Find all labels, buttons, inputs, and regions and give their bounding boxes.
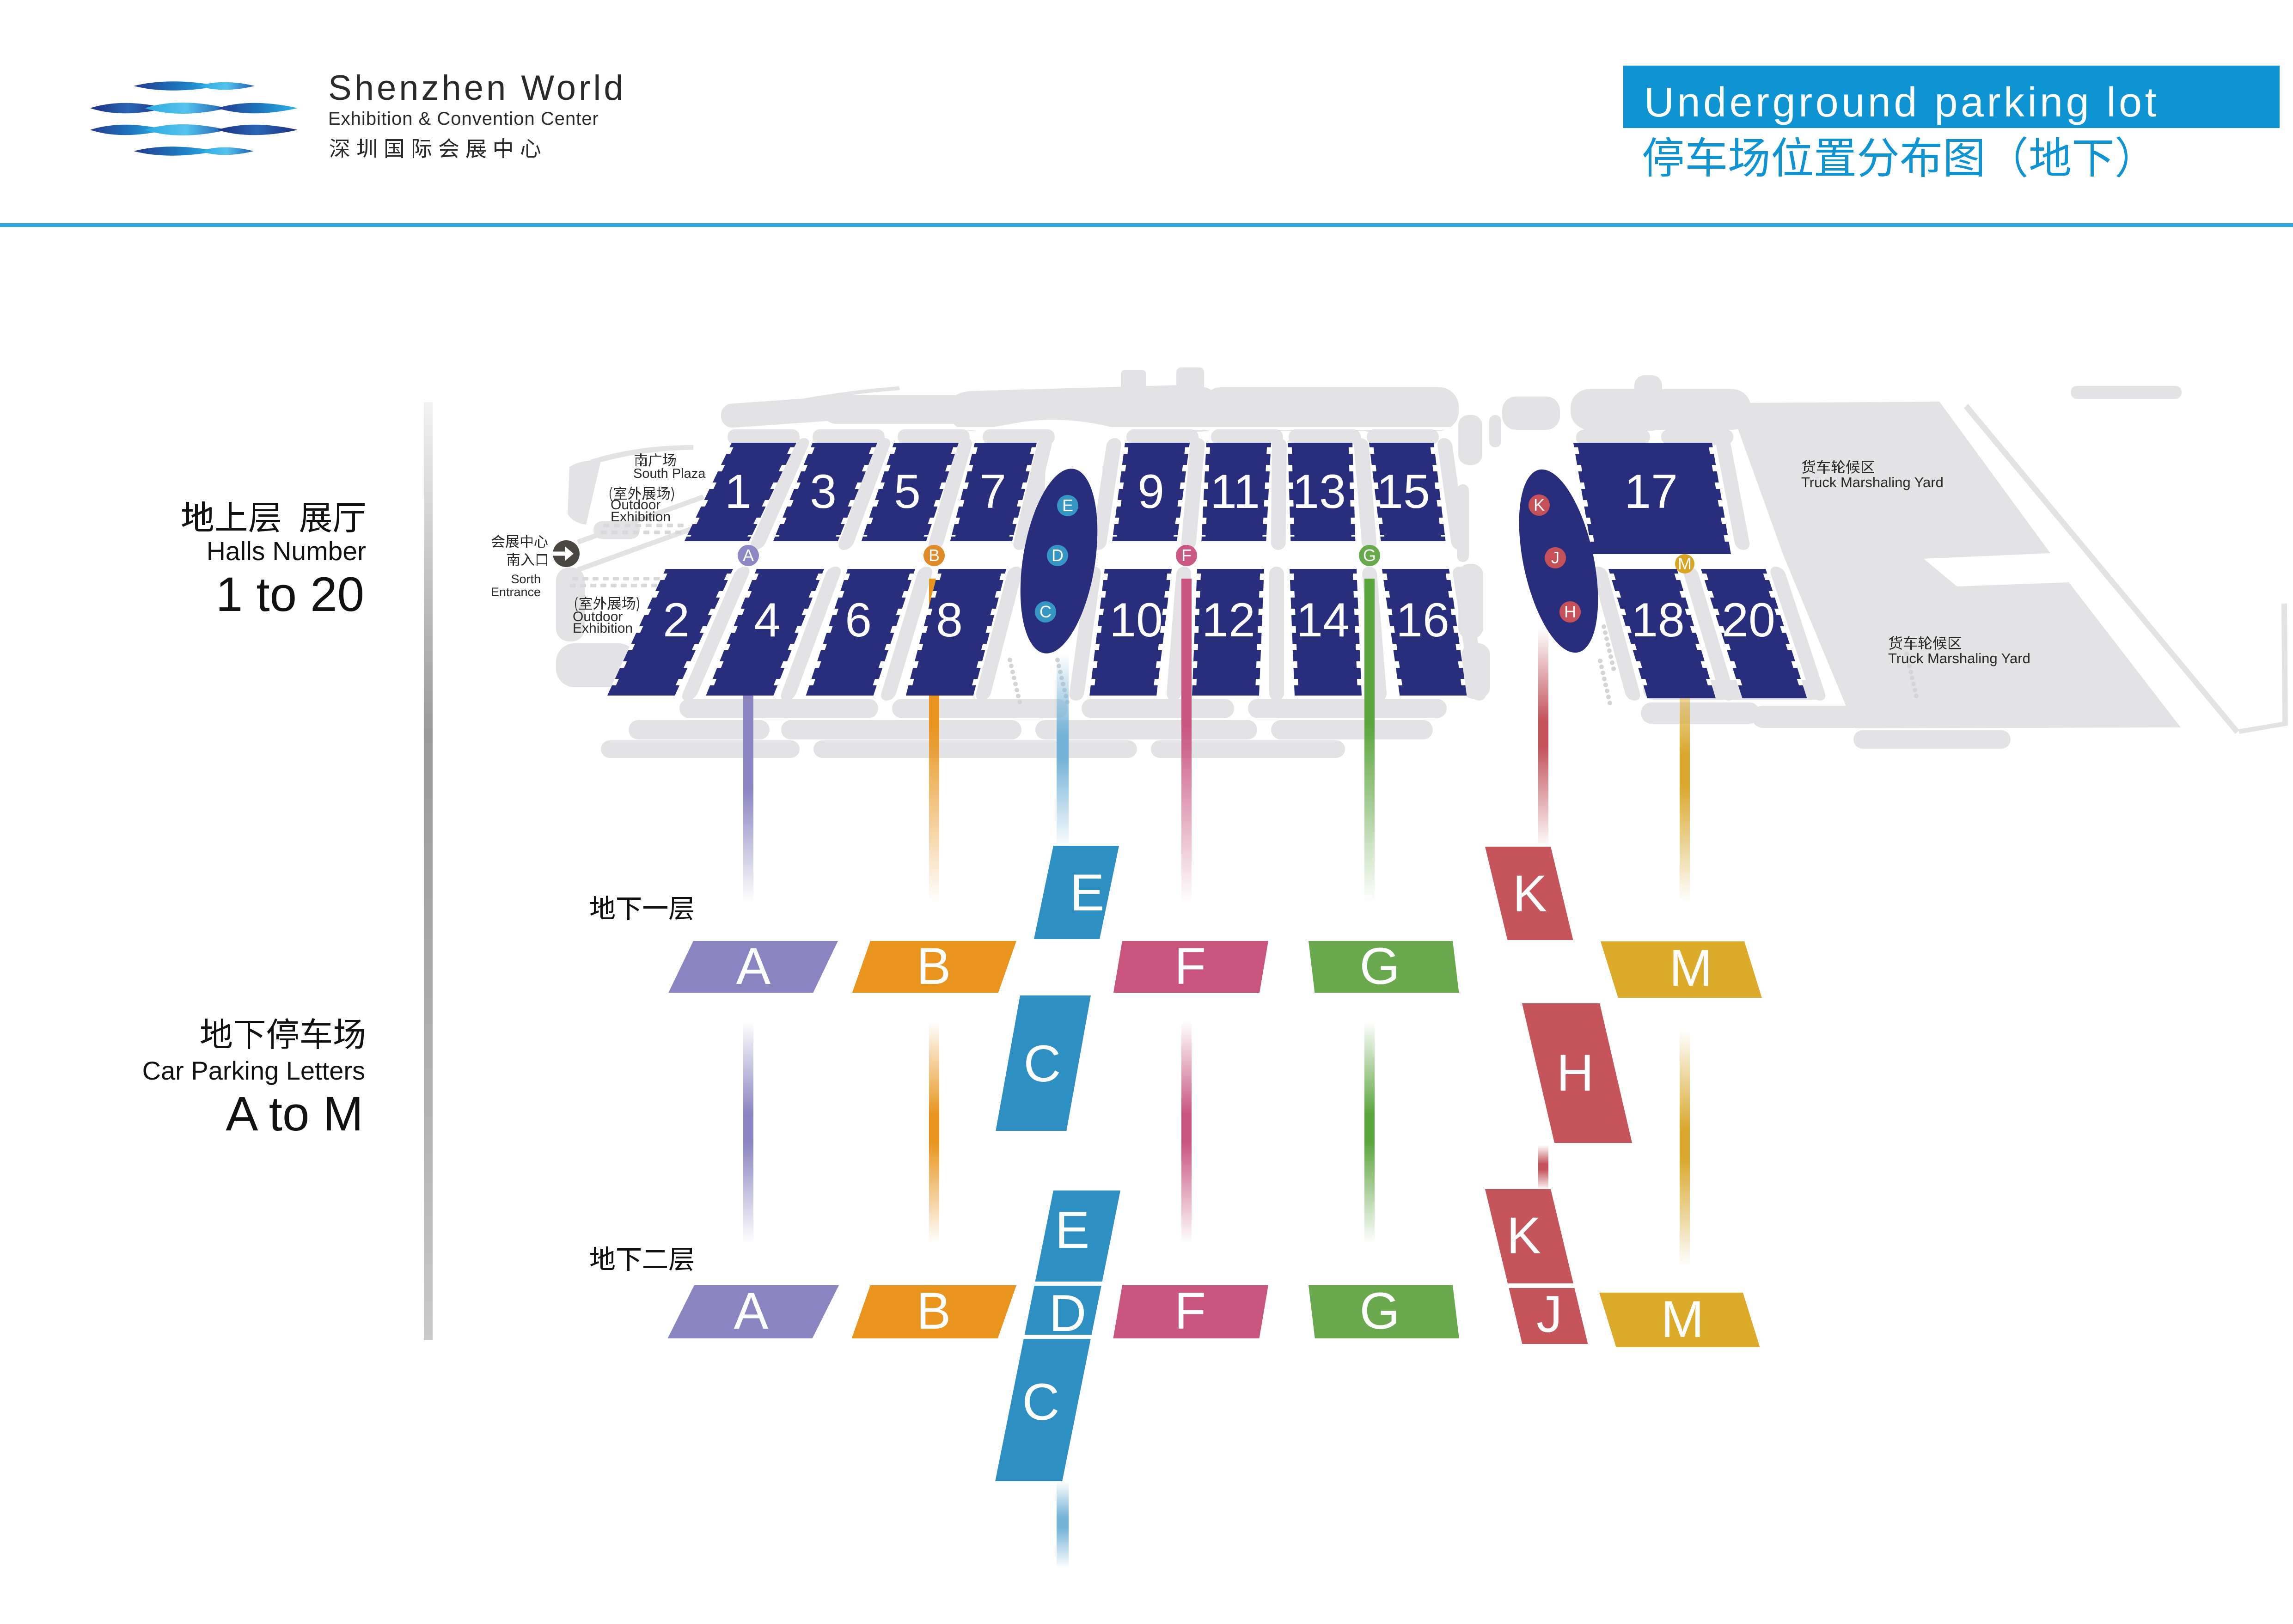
svg-text:Entrance: Entrance — [491, 585, 541, 599]
svg-text:Halls Number: Halls Number — [207, 537, 366, 566]
svg-text:Truck Marshaling Yard: Truck Marshaling Yard — [1801, 474, 1944, 490]
svg-text:M: M — [1678, 554, 1692, 573]
svg-text:12: 12 — [1202, 593, 1255, 647]
svg-text:7: 7 — [979, 465, 1006, 519]
svg-text:16: 16 — [1396, 593, 1449, 647]
svg-text:B: B — [917, 937, 951, 995]
svg-text:3: 3 — [810, 465, 837, 519]
svg-text:B: B — [917, 1282, 951, 1340]
svg-text:Sorth: Sorth — [511, 572, 541, 586]
svg-text:C: C — [1022, 1373, 1060, 1431]
svg-text:E: E — [1055, 1201, 1090, 1259]
svg-text:E: E — [1062, 496, 1073, 515]
svg-text:11: 11 — [1210, 465, 1260, 519]
svg-text:Exhibition: Exhibition — [573, 621, 633, 636]
svg-text:2: 2 — [663, 593, 690, 647]
svg-text:A: A — [736, 937, 771, 995]
svg-text:K: K — [1513, 865, 1547, 922]
svg-text:J: J — [1551, 548, 1559, 567]
svg-text:14: 14 — [1296, 593, 1350, 647]
svg-text:K: K — [1507, 1207, 1541, 1264]
svg-text:6: 6 — [845, 593, 872, 647]
svg-text:13: 13 — [1292, 465, 1346, 519]
svg-text:F: F — [1174, 1282, 1206, 1340]
svg-text:B: B — [929, 546, 940, 565]
svg-text:C: C — [1039, 602, 1052, 621]
svg-text:Exhibition & Convention Center: Exhibition & Convention Center — [328, 109, 599, 129]
svg-text:A: A — [743, 546, 754, 565]
svg-text:20: 20 — [1722, 593, 1775, 647]
svg-text:F: F — [1181, 546, 1192, 565]
svg-text:4: 4 — [754, 593, 781, 647]
svg-text:1: 1 — [725, 465, 752, 519]
svg-text:Car Parking Letters: Car Parking Letters — [142, 1056, 365, 1085]
svg-text:F: F — [1174, 937, 1206, 995]
svg-text:Underground parking lot: Underground parking lot — [1644, 79, 2159, 126]
svg-text:J: J — [1536, 1285, 1562, 1343]
svg-text:G: G — [1363, 546, 1376, 565]
svg-text:A to M: A to M — [226, 1087, 363, 1141]
svg-text:5: 5 — [894, 465, 921, 519]
svg-text:1 to 20: 1 to 20 — [216, 568, 364, 622]
svg-text:K: K — [1534, 495, 1545, 514]
svg-text:H: H — [1557, 1044, 1594, 1102]
svg-text:South Plaza: South Plaza — [633, 466, 706, 481]
svg-text:18: 18 — [1631, 593, 1685, 647]
svg-text:8: 8 — [936, 593, 963, 647]
svg-text:10: 10 — [1109, 593, 1163, 647]
svg-text:9: 9 — [1137, 465, 1164, 519]
svg-text:E: E — [1070, 864, 1105, 922]
svg-text:15: 15 — [1376, 465, 1430, 519]
svg-text:G: G — [1359, 1282, 1400, 1340]
svg-text:17: 17 — [1624, 465, 1678, 519]
svg-text:Truck Marshaling Yard: Truck Marshaling Yard — [1888, 650, 2030, 666]
svg-text:A: A — [734, 1282, 769, 1340]
svg-text:Shenzhen World: Shenzhen World — [328, 68, 626, 108]
svg-text:Exhibition: Exhibition — [611, 509, 671, 525]
svg-text:M: M — [1669, 939, 1712, 997]
svg-text:C: C — [1024, 1035, 1061, 1093]
svg-text:D: D — [1049, 1284, 1087, 1342]
svg-text:M: M — [1661, 1290, 1704, 1348]
svg-text:G: G — [1359, 937, 1400, 995]
svg-text:D: D — [1052, 546, 1064, 565]
svg-text:H: H — [1564, 602, 1576, 621]
